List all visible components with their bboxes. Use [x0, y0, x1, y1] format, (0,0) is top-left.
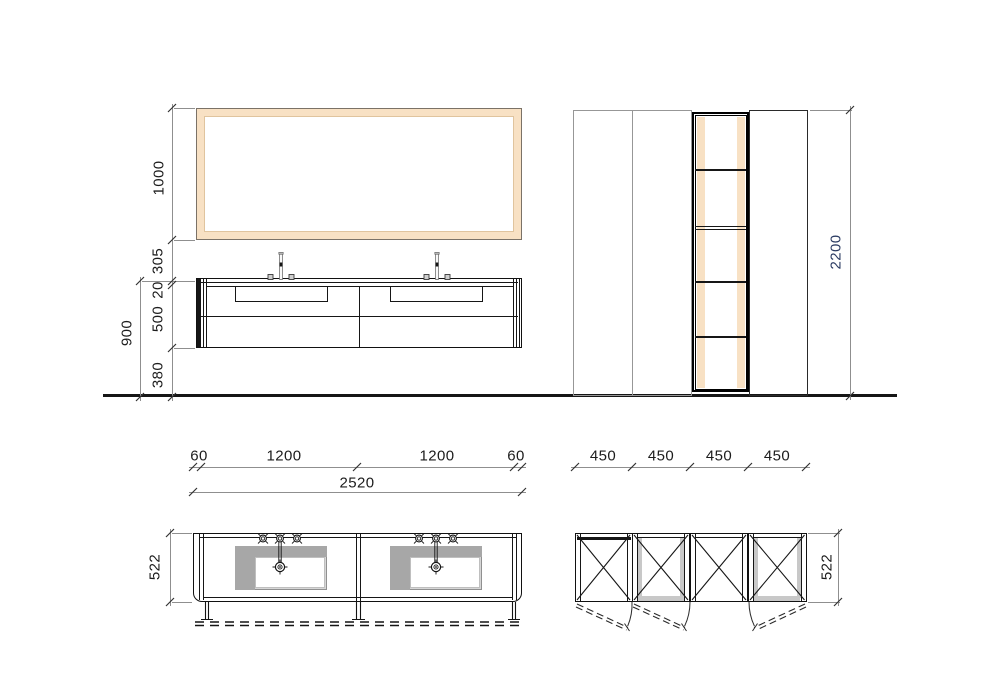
drain-left	[273, 560, 288, 575]
dim-label-column2-width: 450	[648, 448, 674, 465]
dim-label-column4-width: 450	[764, 448, 790, 465]
dim-label-column-height: 2200	[828, 235, 845, 270]
dimension-ticks-900	[136, 277, 144, 401]
dim-label-basin-span-left: 1200	[267, 448, 302, 465]
dim-label-worktop-height: 900	[119, 320, 136, 346]
dim-label-cabinet-height: 500	[150, 306, 167, 332]
technical-drawing-canvas: 1000 305 20 500 380 900 2200 60 1200 120…	[0, 0, 1000, 700]
faucet-left-elevation	[268, 252, 294, 279]
dim-label-offset-right: 60	[507, 448, 525, 465]
dim-label-mirror-gap: 305	[150, 248, 167, 274]
dimension-ticks-2200	[846, 106, 854, 400]
door-swing-column4	[749, 602, 806, 631]
faucet-holes-left	[258, 534, 302, 544]
door-swing-column1	[576, 602, 632, 631]
dimension-ticks-522-left	[166, 529, 174, 606]
dim-label-counter-thickness: 20	[150, 281, 167, 299]
dim-label-basin-span-right: 1200	[420, 448, 455, 465]
dim-label-column1-width: 450	[590, 448, 616, 465]
dim-label-floor-clearance: 380	[150, 362, 167, 388]
linework-overlay	[0, 0, 1000, 700]
dimension-ticks-elevation-chain	[168, 104, 176, 401]
dim-label-vanity-depth: 522	[147, 554, 164, 580]
dim-label-total-width: 2520	[340, 475, 375, 492]
wall-bracket-stubs	[201, 602, 520, 620]
faucet-right-elevation	[424, 252, 450, 279]
dim-label-mirror-height: 1000	[151, 161, 168, 196]
drain-connector-left	[279, 542, 281, 562]
door-swing-column2	[633, 602, 690, 631]
dimension-ticks-vanity-segments	[189, 463, 526, 471]
drain-connector-right	[435, 542, 437, 562]
faucet-holes-right	[414, 534, 458, 544]
column-x-braces	[577, 535, 805, 600]
drain-right	[429, 560, 444, 575]
dim-label-columns-depth: 522	[819, 554, 836, 580]
dim-label-offset-left: 60	[190, 448, 208, 465]
dim-label-column3-width: 450	[706, 448, 732, 465]
dashed-wall-line	[195, 622, 522, 626]
